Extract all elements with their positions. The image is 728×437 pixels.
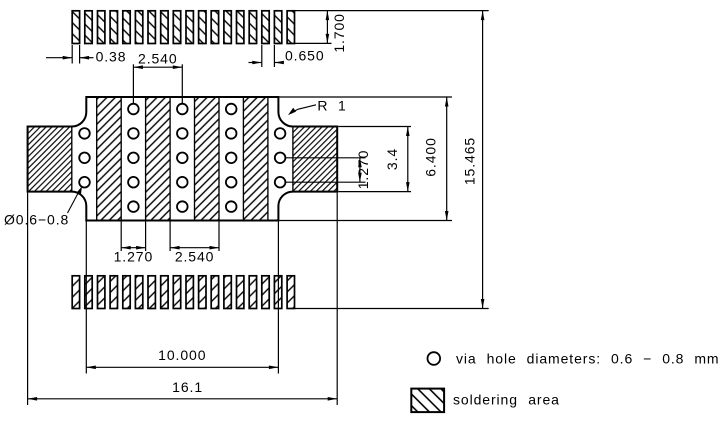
svg-text:0.38: 0.38 (96, 49, 127, 65)
svg-text:16.1: 16.1 (172, 379, 203, 395)
svg-text:1.270: 1.270 (355, 150, 371, 190)
svg-text:via hole diameters: 0.6 − 0.8: via hole diameters: 0.6 − 0.8 mm (456, 351, 720, 367)
svg-text:0.650: 0.650 (285, 48, 325, 64)
svg-text:15.465: 15.465 (462, 137, 478, 185)
svg-text:3.4: 3.4 (384, 148, 400, 170)
svg-text:soldering area: soldering area (453, 392, 560, 408)
svg-text:1.700: 1.700 (331, 13, 347, 53)
svg-text:6.400: 6.400 (423, 137, 439, 177)
svg-text:R 1: R 1 (317, 97, 346, 113)
svg-text:Ø0.6−0.8: Ø0.6−0.8 (4, 212, 69, 228)
svg-text:2.540: 2.540 (138, 51, 178, 67)
svg-text:1.270: 1.270 (114, 249, 154, 265)
svg-text:10.000: 10.000 (158, 347, 206, 363)
svg-text:2.540: 2.540 (175, 249, 215, 265)
